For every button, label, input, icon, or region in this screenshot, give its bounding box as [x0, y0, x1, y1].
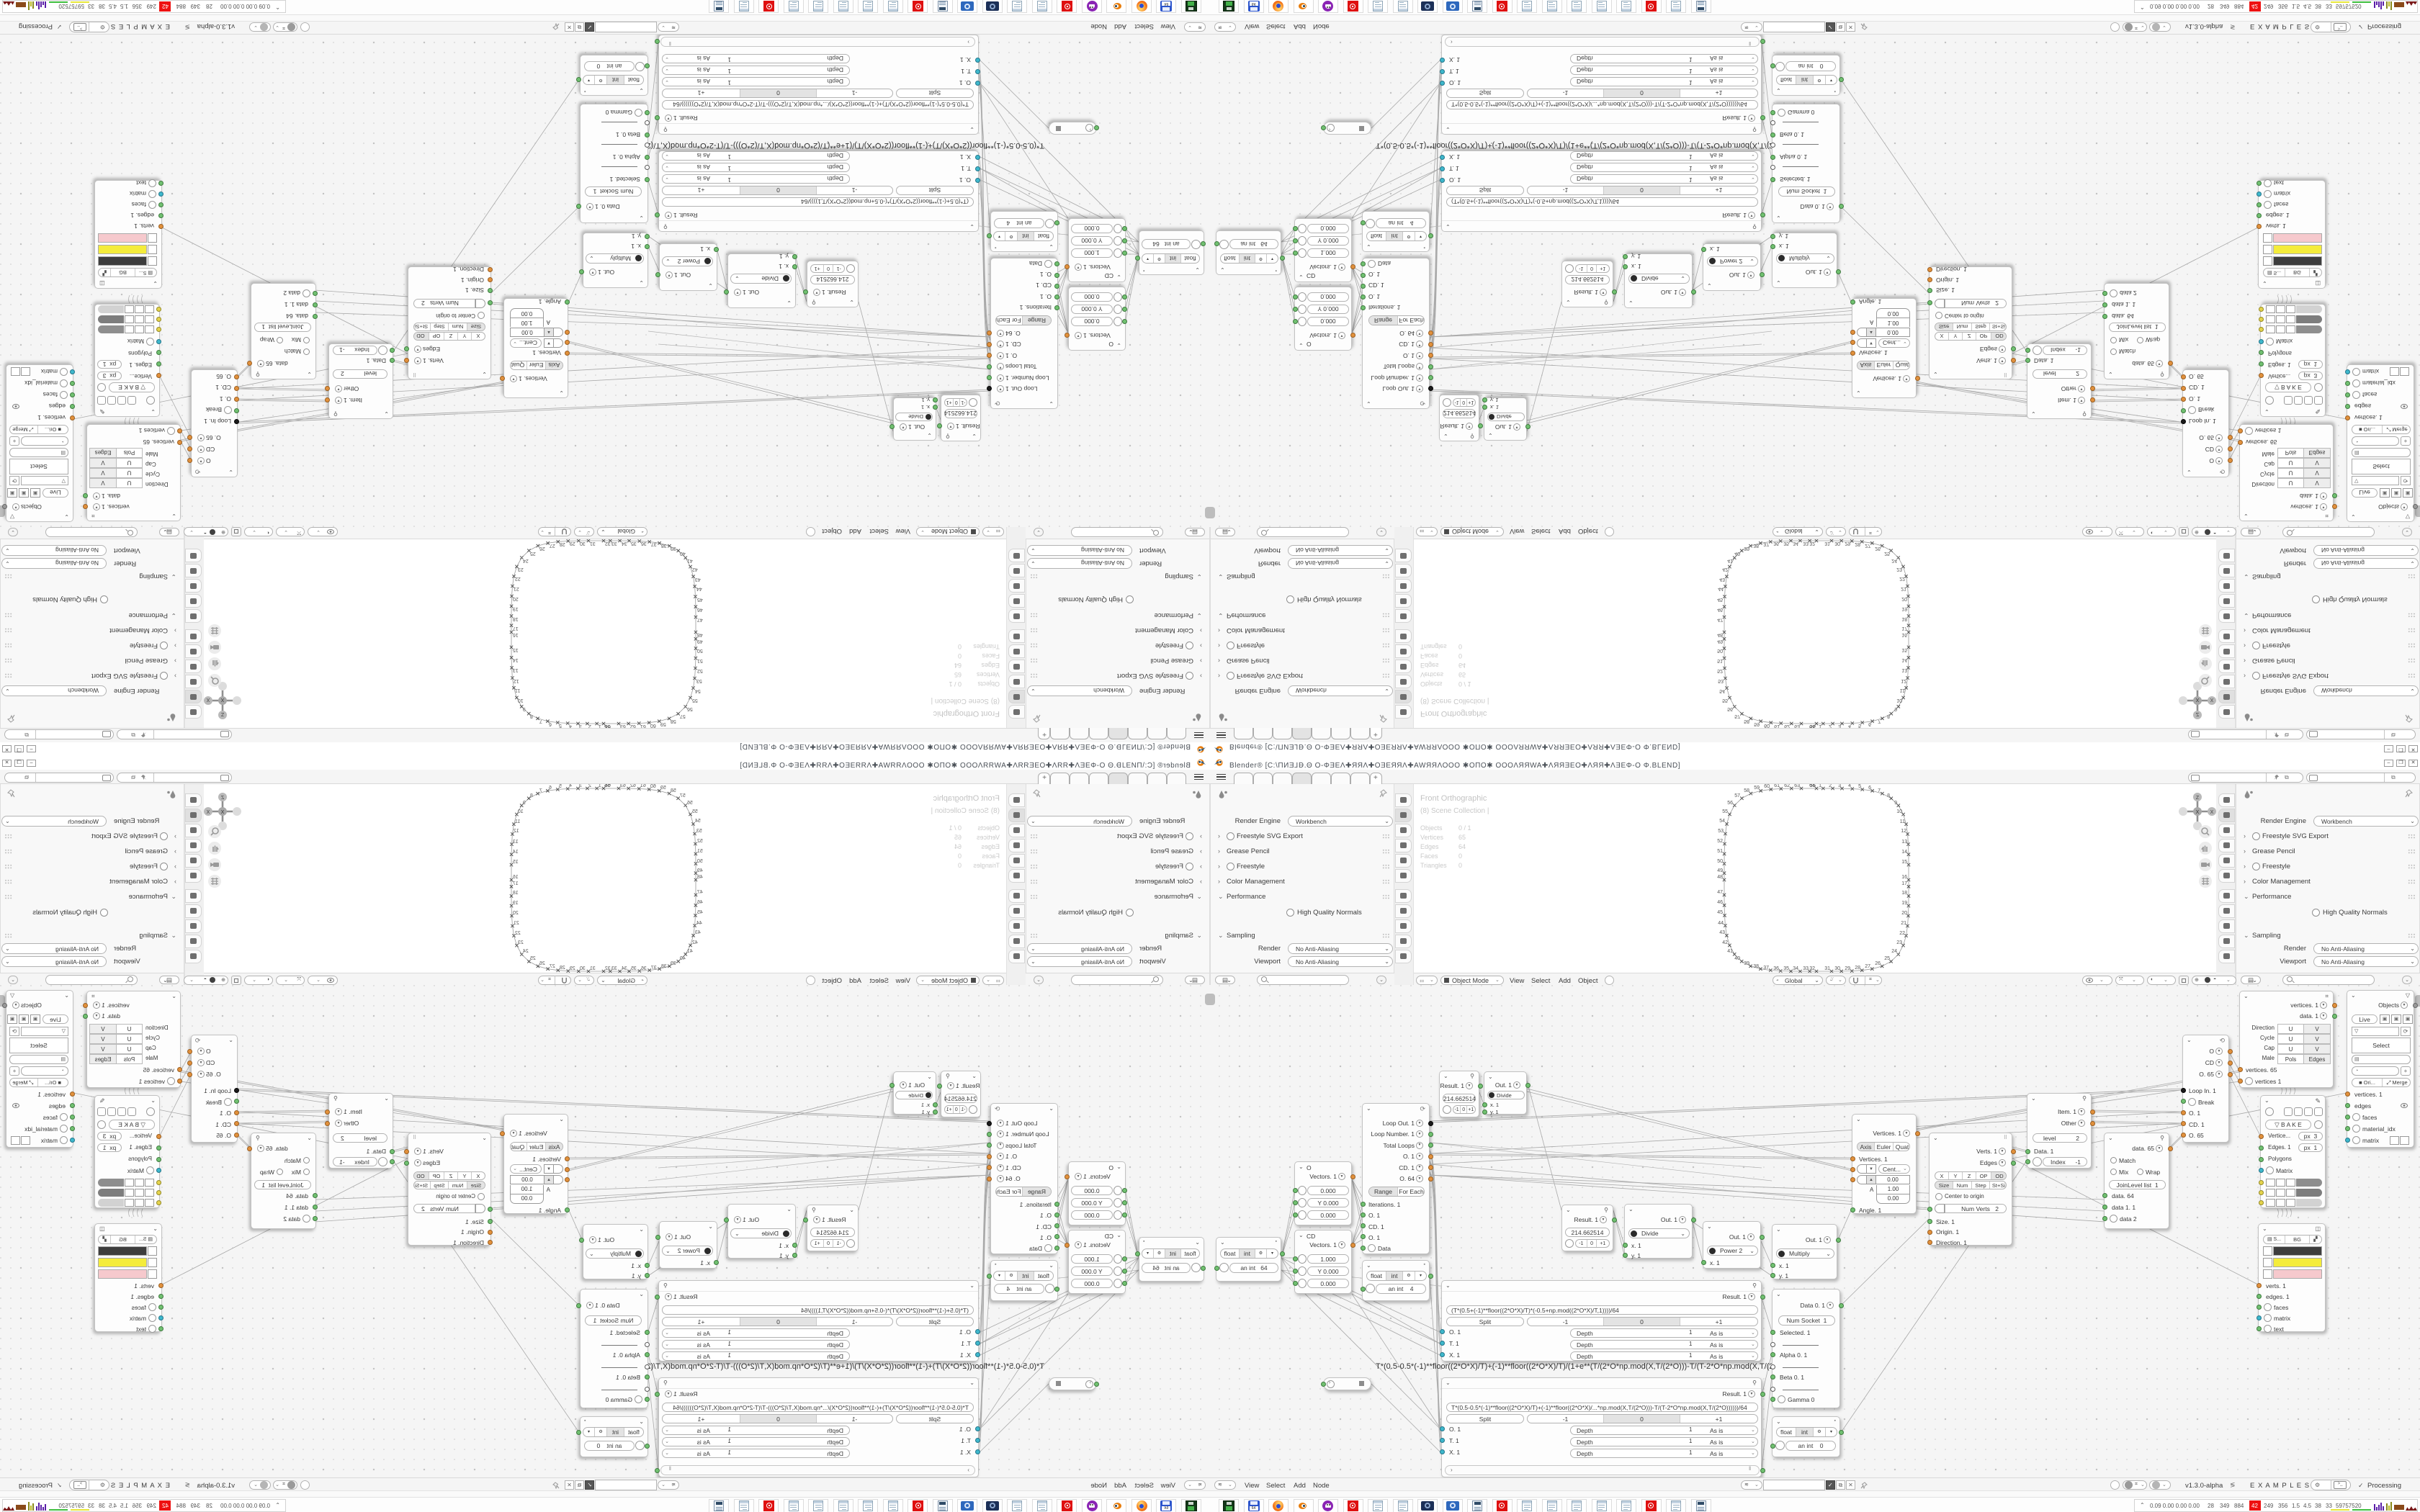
- svg-text:12: 12: [514, 678, 519, 683]
- svg-text:2: 2: [1829, 784, 1832, 788]
- svg-text:11: 11: [515, 688, 520, 693]
- svg-text:34: 34: [1793, 966, 1798, 971]
- svg-text:57: 57: [1734, 793, 1740, 798]
- svg-text:27: 27: [550, 543, 555, 548]
- svg-text:19: 19: [513, 901, 519, 906]
- svg-text:59: 59: [660, 721, 666, 726]
- svg-text:47: 47: [697, 890, 703, 895]
- svg-text:18: 18: [513, 891, 519, 896]
- svg-text:13: 13: [1901, 667, 1907, 672]
- svg-text:65: 65: [1809, 724, 1816, 728]
- svg-text:29: 29: [570, 541, 575, 546]
- svg-text:51: 51: [1717, 658, 1723, 663]
- svg-text:47: 47: [697, 617, 703, 622]
- svg-text:23: 23: [1896, 940, 1902, 945]
- svg-text:8: 8: [530, 714, 533, 719]
- svg-text:18: 18: [1901, 616, 1907, 621]
- svg-text:16: 16: [513, 875, 519, 880]
- svg-text:33: 33: [611, 541, 617, 546]
- svg-text:44: 44: [696, 586, 702, 591]
- svg-text:1: 1: [599, 724, 601, 728]
- svg-text:44: 44: [1718, 921, 1724, 926]
- svg-text:15: 15: [1901, 860, 1907, 865]
- svg-text:61: 61: [1774, 724, 1780, 728]
- svg-text:25: 25: [1884, 551, 1890, 556]
- svg-text:16: 16: [1901, 875, 1907, 880]
- svg-text:34: 34: [1793, 541, 1798, 546]
- svg-text:4: 4: [1848, 784, 1851, 788]
- svg-text:53: 53: [696, 678, 702, 683]
- svg-text:2: 2: [1829, 724, 1832, 728]
- svg-text:39: 39: [1744, 961, 1749, 966]
- svg-text:37: 37: [1763, 541, 1769, 546]
- svg-text:36: 36: [641, 966, 647, 971]
- svg-text:42: 42: [1722, 567, 1728, 572]
- svg-text:7: 7: [1878, 788, 1881, 793]
- svg-text:50: 50: [697, 859, 703, 864]
- svg-text:65: 65: [604, 784, 610, 788]
- svg-text:7: 7: [539, 719, 542, 724]
- svg-text:55: 55: [692, 698, 698, 703]
- svg-text:26: 26: [1875, 546, 1881, 551]
- svg-text:21: 21: [514, 921, 519, 926]
- svg-text:15: 15: [513, 860, 519, 865]
- svg-text:24: 24: [523, 949, 529, 954]
- svg-text:18: 18: [513, 616, 519, 621]
- svg-text:18: 18: [1901, 891, 1907, 896]
- svg-text:47: 47: [1717, 890, 1723, 895]
- svg-text:21: 21: [1901, 921, 1906, 926]
- svg-text:63: 63: [1794, 784, 1800, 788]
- svg-text:43: 43: [1719, 930, 1725, 935]
- svg-text:39: 39: [1744, 546, 1749, 551]
- svg-text:65: 65: [604, 724, 610, 728]
- svg-text:27: 27: [1865, 543, 1870, 548]
- svg-text:42: 42: [1722, 940, 1728, 945]
- svg-text:32: 32: [1809, 541, 1815, 546]
- svg-text:10: 10: [518, 698, 524, 703]
- svg-text:31: 31: [590, 541, 596, 546]
- svg-text:60: 60: [1764, 723, 1770, 728]
- svg-text:20: 20: [513, 596, 519, 601]
- svg-text:63: 63: [620, 724, 626, 728]
- svg-text:44: 44: [696, 921, 702, 926]
- svg-text:11: 11: [1900, 819, 1905, 824]
- svg-text:40: 40: [680, 551, 686, 556]
- svg-text:54: 54: [695, 819, 701, 824]
- svg-text:31: 31: [1824, 541, 1830, 546]
- svg-text:50: 50: [1717, 859, 1723, 864]
- svg-text:13: 13: [513, 840, 519, 845]
- svg-text:1: 1: [599, 784, 601, 788]
- svg-text:29: 29: [1845, 966, 1850, 971]
- svg-text:28: 28: [1855, 966, 1860, 971]
- svg-text:25: 25: [1884, 956, 1890, 961]
- svg-text:37: 37: [1763, 966, 1769, 971]
- svg-text:3: 3: [1838, 784, 1841, 788]
- svg-text:45: 45: [1717, 910, 1723, 915]
- svg-text:35: 35: [631, 966, 637, 971]
- svg-text:28: 28: [560, 541, 565, 546]
- svg-text:9: 9: [1894, 801, 1897, 806]
- svg-text:39: 39: [671, 961, 676, 966]
- svg-text:46: 46: [697, 607, 703, 612]
- svg-text:63: 63: [620, 784, 626, 788]
- svg-text:17: 17: [1901, 626, 1907, 631]
- svg-text:41: 41: [687, 558, 693, 563]
- svg-text:46: 46: [1717, 607, 1723, 612]
- svg-text:13: 13: [1901, 840, 1907, 845]
- svg-text:61: 61: [1774, 784, 1780, 788]
- svg-text:51: 51: [1717, 849, 1723, 854]
- svg-text:22: 22: [515, 931, 521, 936]
- svg-text:31: 31: [1824, 966, 1830, 971]
- svg-text:60: 60: [650, 784, 656, 789]
- svg-text:56: 56: [1727, 801, 1733, 806]
- svg-text:53: 53: [1718, 678, 1724, 683]
- svg-text:14: 14: [1901, 850, 1907, 855]
- svg-text:51: 51: [697, 658, 703, 663]
- svg-text:38: 38: [1753, 964, 1759, 969]
- svg-text:25: 25: [530, 551, 536, 556]
- svg-text:12: 12: [1901, 829, 1906, 834]
- svg-text:8: 8: [530, 793, 533, 798]
- svg-text:41: 41: [687, 949, 693, 954]
- svg-text:20: 20: [1901, 596, 1907, 601]
- svg-text:43: 43: [695, 577, 701, 582]
- svg-text:24: 24: [1891, 558, 1897, 563]
- svg-text:46: 46: [697, 900, 703, 905]
- svg-text:12: 12: [1901, 678, 1906, 683]
- svg-text:36: 36: [641, 541, 647, 546]
- svg-text:45: 45: [1717, 597, 1723, 602]
- svg-text:10: 10: [1896, 809, 1902, 814]
- svg-text:36: 36: [1773, 966, 1779, 971]
- svg-text:55: 55: [1722, 698, 1728, 703]
- svg-text:6: 6: [1868, 786, 1871, 791]
- svg-text:41: 41: [1727, 949, 1733, 954]
- svg-text:17: 17: [513, 881, 519, 886]
- svg-text:35: 35: [1783, 541, 1789, 546]
- svg-text:41: 41: [1727, 558, 1733, 563]
- svg-text:51: 51: [697, 849, 703, 854]
- svg-text:19: 19: [1901, 901, 1907, 906]
- svg-text:27: 27: [550, 964, 555, 969]
- svg-text:49: 49: [1717, 868, 1723, 873]
- svg-text:21: 21: [1901, 586, 1906, 591]
- svg-text:54: 54: [1719, 688, 1725, 693]
- svg-text:56: 56: [687, 706, 693, 711]
- svg-text:15: 15: [1901, 647, 1907, 652]
- svg-text:55: 55: [1722, 809, 1728, 814]
- svg-text:19: 19: [513, 606, 519, 611]
- svg-text:1: 1: [1819, 784, 1821, 788]
- svg-text:43: 43: [695, 930, 701, 935]
- svg-text:12: 12: [514, 829, 519, 834]
- svg-text:35: 35: [631, 541, 637, 546]
- svg-text:57: 57: [680, 793, 686, 798]
- svg-text:23: 23: [518, 567, 524, 572]
- svg-text:26: 26: [1875, 961, 1881, 966]
- svg-text:14: 14: [1901, 657, 1907, 662]
- svg-text:26: 26: [539, 546, 545, 551]
- svg-text:54: 54: [1719, 819, 1725, 824]
- svg-text:17: 17: [513, 626, 519, 631]
- svg-text:5: 5: [1858, 784, 1861, 789]
- svg-text:62: 62: [1784, 724, 1790, 728]
- svg-text:35: 35: [1783, 966, 1789, 971]
- svg-text:56: 56: [1727, 706, 1733, 711]
- svg-text:4: 4: [569, 784, 572, 788]
- svg-text:62: 62: [1784, 784, 1790, 788]
- svg-text:26: 26: [539, 961, 545, 966]
- svg-text:29: 29: [1845, 541, 1850, 546]
- svg-text:9: 9: [523, 801, 526, 806]
- svg-text:38: 38: [661, 964, 667, 969]
- svg-text:24: 24: [1891, 949, 1897, 954]
- svg-text:48: 48: [697, 875, 703, 880]
- svg-text:2: 2: [588, 784, 591, 788]
- svg-text:48: 48: [697, 632, 703, 637]
- svg-text:30: 30: [1834, 541, 1840, 546]
- svg-text:10: 10: [518, 809, 524, 814]
- svg-text:16: 16: [513, 632, 519, 637]
- svg-text:40: 40: [1734, 956, 1740, 961]
- svg-text:40: 40: [1734, 551, 1740, 556]
- svg-text:53: 53: [696, 829, 702, 834]
- svg-text:56: 56: [687, 801, 693, 806]
- svg-text:31: 31: [590, 966, 596, 971]
- svg-text:3: 3: [1838, 724, 1841, 728]
- svg-text:45: 45: [697, 597, 703, 602]
- svg-text:17: 17: [1901, 881, 1907, 886]
- svg-text:62: 62: [630, 784, 636, 788]
- svg-text:50: 50: [697, 648, 703, 653]
- svg-text:32: 32: [605, 541, 611, 546]
- svg-text:33: 33: [1803, 541, 1809, 546]
- svg-text:33: 33: [1803, 966, 1809, 971]
- svg-text:49: 49: [1717, 639, 1723, 644]
- svg-text:48: 48: [1717, 875, 1723, 880]
- svg-text:48: 48: [1717, 632, 1723, 637]
- svg-text:3: 3: [579, 784, 582, 788]
- svg-text:6: 6: [1868, 721, 1871, 726]
- svg-text:40: 40: [680, 956, 686, 961]
- svg-text:21: 21: [514, 586, 519, 591]
- svg-text:15: 15: [513, 647, 519, 652]
- svg-text:55: 55: [692, 809, 698, 814]
- svg-text:54: 54: [695, 688, 701, 693]
- svg-text:53: 53: [1718, 829, 1724, 834]
- svg-text:25: 25: [530, 956, 536, 961]
- svg-text:22: 22: [1899, 576, 1905, 581]
- svg-text:43: 43: [1719, 577, 1725, 582]
- svg-text:42: 42: [692, 567, 698, 572]
- svg-text:11: 11: [515, 819, 520, 824]
- svg-text:8: 8: [1887, 793, 1890, 798]
- svg-text:14: 14: [513, 850, 519, 855]
- svg-text:22: 22: [515, 576, 521, 581]
- svg-text:23: 23: [518, 940, 524, 945]
- svg-text:5: 5: [559, 723, 562, 728]
- svg-text:14: 14: [513, 657, 519, 662]
- svg-text:52: 52: [1717, 668, 1723, 673]
- svg-text:39: 39: [671, 546, 676, 551]
- svg-text:27: 27: [1865, 964, 1870, 969]
- svg-text:34: 34: [622, 966, 627, 971]
- svg-text:28: 28: [560, 966, 565, 971]
- svg-text:45: 45: [697, 910, 703, 915]
- svg-text:46: 46: [1717, 900, 1723, 905]
- svg-text:59: 59: [660, 786, 666, 791]
- svg-text:9: 9: [1894, 706, 1897, 711]
- svg-text:8: 8: [1887, 714, 1890, 719]
- svg-text:6: 6: [549, 721, 552, 726]
- svg-text:60: 60: [650, 723, 656, 728]
- svg-text:57: 57: [680, 714, 686, 719]
- svg-text:38: 38: [661, 543, 667, 548]
- svg-text:30: 30: [580, 966, 586, 971]
- svg-text:50: 50: [1717, 648, 1723, 653]
- svg-text:65: 65: [1809, 784, 1816, 788]
- svg-text:5: 5: [1858, 723, 1861, 728]
- svg-text:11: 11: [1900, 688, 1905, 693]
- svg-text:30: 30: [1834, 966, 1840, 971]
- svg-text:60: 60: [1764, 784, 1770, 789]
- svg-text:42: 42: [692, 940, 698, 945]
- svg-text:52: 52: [1717, 839, 1723, 844]
- svg-text:49: 49: [697, 639, 703, 644]
- svg-text:2: 2: [588, 724, 591, 728]
- svg-text:47: 47: [1717, 617, 1723, 622]
- svg-text:44: 44: [1718, 586, 1724, 591]
- svg-text:7: 7: [539, 788, 542, 793]
- svg-text:38: 38: [1753, 543, 1759, 548]
- svg-text:61: 61: [640, 724, 646, 728]
- svg-text:20: 20: [1901, 911, 1907, 916]
- svg-text:13: 13: [513, 667, 519, 672]
- svg-text:32: 32: [1809, 966, 1815, 971]
- svg-text:61: 61: [640, 784, 646, 788]
- svg-text:62: 62: [630, 724, 636, 728]
- svg-text:58: 58: [1744, 719, 1749, 724]
- svg-text:59: 59: [1754, 721, 1760, 726]
- svg-text:1: 1: [1819, 724, 1821, 728]
- svg-text:30: 30: [580, 541, 586, 546]
- svg-text:3: 3: [579, 724, 582, 728]
- svg-text:58: 58: [671, 788, 676, 793]
- svg-text:10: 10: [1896, 698, 1902, 703]
- svg-text:49: 49: [697, 868, 703, 873]
- svg-text:59: 59: [1754, 786, 1760, 791]
- svg-text:7: 7: [1878, 719, 1881, 724]
- svg-text:36: 36: [1773, 541, 1779, 546]
- svg-text:19: 19: [1901, 606, 1907, 611]
- svg-text:20: 20: [513, 911, 519, 916]
- svg-text:22: 22: [1899, 931, 1905, 936]
- svg-text:9: 9: [523, 706, 526, 711]
- svg-text:33: 33: [611, 966, 617, 971]
- svg-text:32: 32: [605, 966, 611, 971]
- svg-text:52: 52: [697, 668, 703, 673]
- svg-text:52: 52: [697, 839, 703, 844]
- svg-text:58: 58: [1744, 788, 1749, 793]
- svg-text:5: 5: [559, 784, 562, 789]
- svg-text:4: 4: [569, 724, 572, 728]
- svg-text:37: 37: [651, 966, 657, 971]
- svg-text:63: 63: [1794, 724, 1800, 728]
- svg-text:28: 28: [1855, 541, 1860, 546]
- svg-text:4: 4: [1848, 724, 1851, 728]
- svg-text:58: 58: [671, 719, 676, 724]
- svg-text:34: 34: [622, 541, 627, 546]
- svg-text:29: 29: [570, 966, 575, 971]
- svg-text:37: 37: [651, 541, 657, 546]
- svg-text:16: 16: [1901, 632, 1907, 637]
- svg-text:6: 6: [549, 786, 552, 791]
- svg-text:57: 57: [1734, 714, 1740, 719]
- svg-text:24: 24: [523, 558, 529, 563]
- svg-text:23: 23: [1896, 567, 1902, 572]
